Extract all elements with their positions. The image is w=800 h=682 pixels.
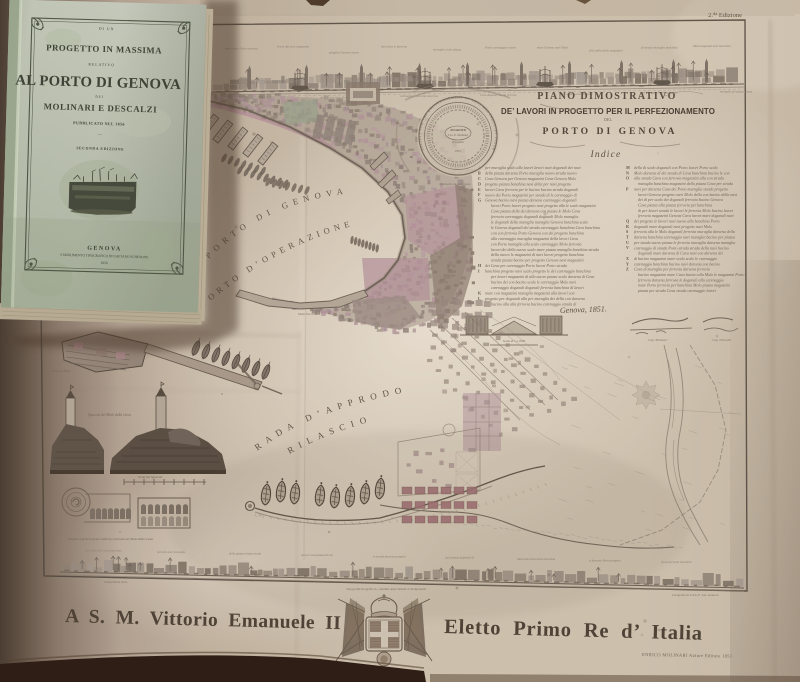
svg-text:1856: 1856 [100, 261, 107, 265]
svg-text:DEI: DEI [95, 95, 104, 99]
svg-text:DI UN: DI UN [99, 27, 115, 31]
svg-text:GENOVA: GENOVA [87, 246, 122, 253]
svg-text:RELATIVO: RELATIVO [88, 63, 115, 68]
svg-text:—: — [96, 132, 102, 137]
